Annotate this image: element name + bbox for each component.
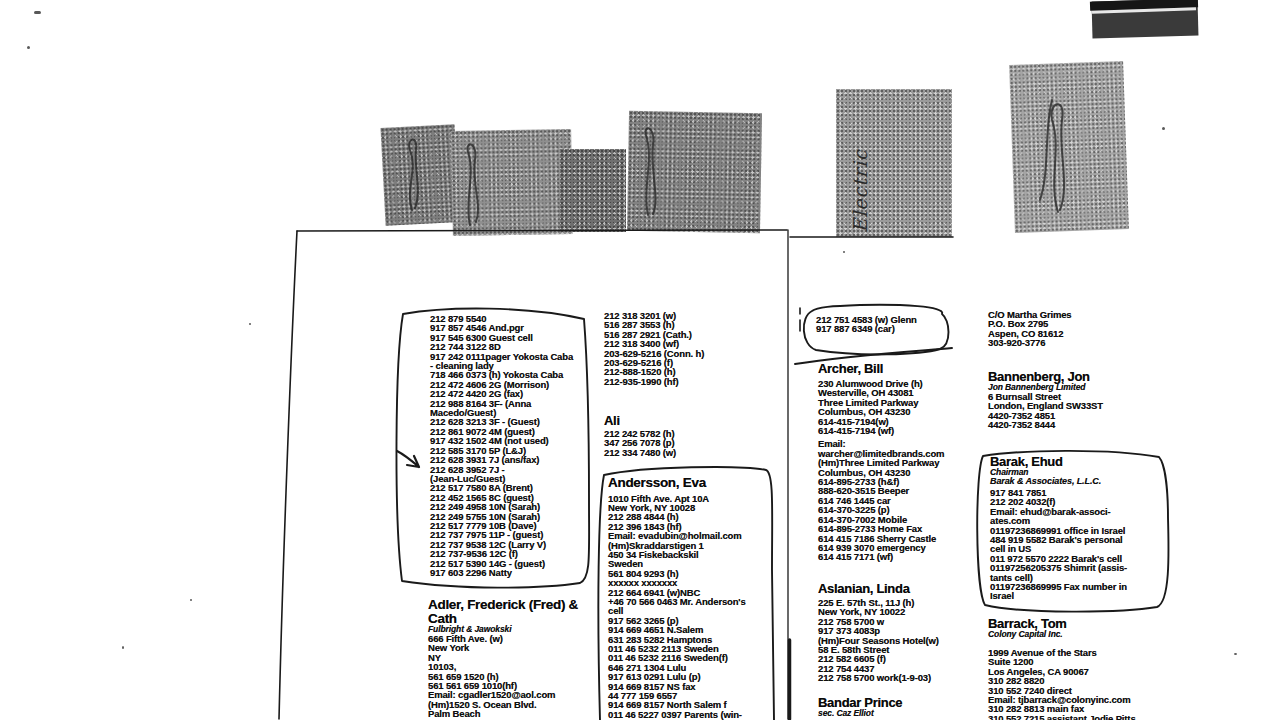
text-line: 614 415 7171 (wf) xyxy=(818,552,944,561)
entry-andersson: Andersson, Eva 1010 Fifth Ave. Apt 10ANe… xyxy=(608,476,746,719)
entry-adler: Adler, Frederick (Fred) & Cath Fulbright… xyxy=(428,598,578,719)
entry-name-2: Cath xyxy=(428,612,578,626)
left-page-edge xyxy=(279,231,297,719)
boxed-phone-list: 212 879 5540917 857 4546 And.pgr917 545 … xyxy=(430,314,573,577)
entry-bandar: Bandar Prince sec. Caz Elliot xyxy=(818,696,902,718)
dust-speck xyxy=(1162,127,1165,130)
entry-lines-2: Email:warcher@limitedbrands.com(Hm)Three… xyxy=(818,439,944,561)
dust-speck xyxy=(190,599,192,601)
index-tab xyxy=(380,124,459,226)
entry-aslanian: Aslanian, Linda 225 E. 57th St., 11J (h)… xyxy=(818,582,939,683)
text-line: 212-935-1990 (hf) xyxy=(604,377,704,386)
entry-lines: 666 Fifth Ave. (w)New YorkNY10103,561 65… xyxy=(428,634,578,719)
entry-bannenberg: Bannenberg, Jon Jon Bannenberg Limited 6… xyxy=(988,370,1103,430)
index-tab xyxy=(451,129,573,236)
entry-lines: 230 Alumwood Drive (h)Westerville, OH 43… xyxy=(818,379,944,435)
dust-speck xyxy=(122,646,124,649)
entry-name: Archer, Bill xyxy=(818,362,944,375)
text-line: 212 758 5700 work(1-9-03) xyxy=(818,673,939,682)
text-line: Palm Beach xyxy=(428,709,578,718)
text-line: 212 334 7480 (w) xyxy=(604,448,676,457)
entry-lines: 225 E. 57th St., 11J (h)New York, NY 100… xyxy=(818,598,939,683)
text-line: 917 603 2296 Natty xyxy=(430,568,573,577)
entry-barrack: Barrack, Tom Colony Capital Inc. 1999 Av… xyxy=(988,617,1136,720)
text-line: 011 46 5227 0397 Parents (win- xyxy=(608,710,746,719)
entry-lines: 1010 Fifth Ave. Apt 10ANew York, NY 1002… xyxy=(608,494,746,720)
text-line: 917 887 6349 (car) xyxy=(816,324,917,333)
entry-ali: Ali 212 242 5782 (h)347 256 7078 (p)212 … xyxy=(604,414,676,457)
index-tab xyxy=(627,111,762,233)
entry-name: Andersson, Eva xyxy=(608,476,746,490)
text-line: New York xyxy=(428,643,578,652)
entry-barak: Barak, Ehud Chairman Barak & Associates,… xyxy=(990,455,1127,601)
entry-subtitle: sec. Caz Elliot xyxy=(818,709,902,718)
text-line: 303-920-3776 xyxy=(988,338,1072,347)
index-tab xyxy=(560,149,626,232)
dust-speck xyxy=(843,251,845,253)
text-line: Israel xyxy=(990,591,1127,600)
dust-speck xyxy=(249,323,251,325)
dust-speck xyxy=(34,11,41,14)
circled-glenn-numbers: 212 751 4583 (w) Glenn917 887 6349 (car) xyxy=(816,315,917,334)
entry-lines: 1999 Avenue of the StarsSuite 1200Los An… xyxy=(988,648,1136,720)
entry-lines: 6 Burnsall StreetLondon, England SW33ST4… xyxy=(988,392,1103,430)
entry-name: Adler, Frederick (Fred) & xyxy=(428,598,578,612)
entry-name: Ali xyxy=(604,414,676,427)
dust-speck xyxy=(27,46,30,49)
entry-archer: Archer, Bill 230 Alumwood Drive (h)Weste… xyxy=(818,362,944,562)
entry-name: Aslanian, Linda xyxy=(818,582,939,595)
dust-speck xyxy=(1234,653,1237,655)
entry-martha-grimes: C/O Martha GrimesP.O. Box 2795Aspen, CO … xyxy=(988,310,1072,348)
handwriting-electric: Electric xyxy=(849,131,871,251)
text-line: 614-415-7194 (wf) xyxy=(818,426,944,435)
hand-drawn-arrow xyxy=(397,451,419,467)
text-line: 310 552 7215 assistant Jodie Pitts xyxy=(988,714,1136,720)
text-line: +46 70 566 0463 Mr. Anderson's xyxy=(608,597,746,606)
entry-firm: Barak & Associates, L.L.C. xyxy=(990,477,1127,486)
text-line: 4420-7352 8444 xyxy=(988,420,1103,429)
entry-lines: 212 242 5782 (h)347 256 7078 (p)212 334 … xyxy=(604,429,676,457)
entry-firm: Colony Capital Inc. xyxy=(988,630,1136,639)
index-tab xyxy=(1009,61,1129,233)
top-phone-list: 212 318 3201 (w)516 287 3553 (h) 516 287… xyxy=(604,311,704,386)
entry-lines: 917 841 7851212 202 4032(f)Email: ehud@b… xyxy=(990,488,1127,601)
